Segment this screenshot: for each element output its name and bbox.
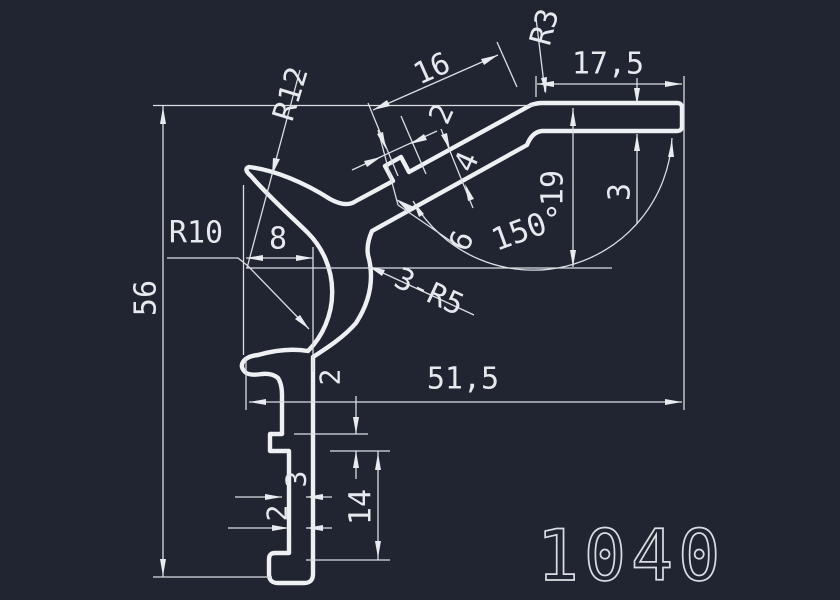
label-dim-14: 14 — [344, 489, 379, 525]
label-dim-51-5: 51,5 — [427, 362, 499, 397]
label-dim-2-bump: 2 — [422, 99, 461, 130]
label-radius-r12: R12 — [266, 63, 315, 125]
label-fillet-3-r5: 3-R5 — [389, 261, 469, 323]
label-radius-r10: R10 — [169, 216, 223, 251]
label-dim-17-5: 17,5 — [572, 47, 644, 82]
label-dim-3-flange: 3 — [603, 183, 638, 201]
label-dim-56: 56 — [129, 280, 164, 316]
label-dim-6: 6 — [442, 226, 481, 257]
label-dim-8: 8 — [269, 222, 287, 257]
label-dim-4: 4 — [447, 147, 486, 178]
label-angle-150: 150° — [487, 199, 569, 258]
cad-canvas: 56R12R108162R317,54193150°63-R5251,53214… — [0, 0, 840, 600]
label-radius-r3: R3 — [523, 5, 566, 49]
label-dim-3-stem: 3 — [280, 471, 313, 488]
label-dim-2-stem: 2 — [261, 505, 294, 522]
label-drawing-number: 1040 — [537, 515, 726, 597]
label-dim-2-tab: 2 — [314, 369, 347, 386]
label-dim-16: 16 — [408, 46, 455, 93]
profile-outline — [242, 103, 682, 583]
cad-drawing-viewport: 56R12R108162R317,54193150°63-R5251,53214… — [0, 0, 840, 600]
